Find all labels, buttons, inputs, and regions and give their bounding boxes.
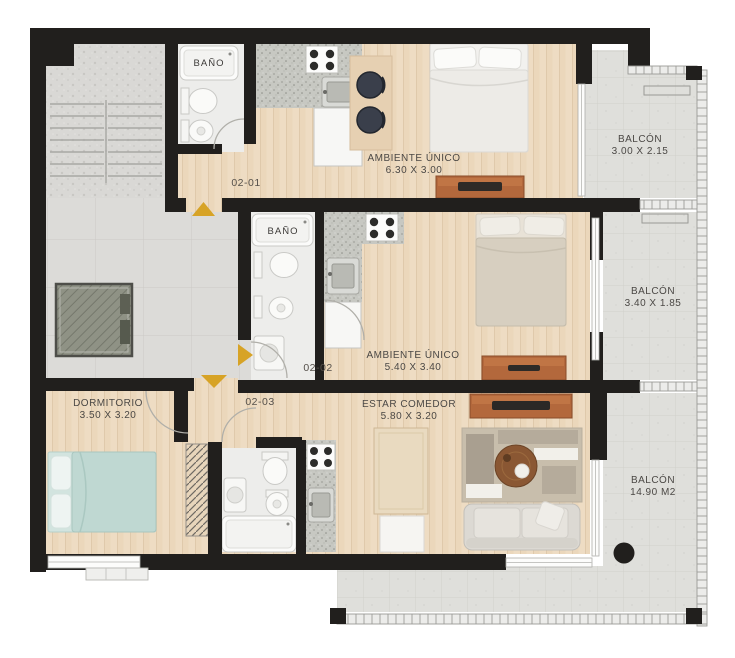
wall-bath1-kitchen — [244, 44, 256, 144]
pillow — [524, 216, 565, 236]
living-area — [462, 428, 582, 502]
wall-stair-step — [46, 44, 74, 66]
wall-vestibule — [174, 391, 188, 442]
unit-label-3: 02-03 — [245, 396, 274, 408]
wall-bath3-kitchen — [296, 440, 306, 554]
room-dims-balcon-3: 14.90 M2 — [630, 487, 676, 498]
exterior-mask — [650, 28, 735, 68]
bench — [380, 516, 424, 552]
tv — [492, 401, 550, 410]
room-dims-dormitorio: 3.50 X 3.20 — [80, 410, 137, 421]
room-dims-estar: 5.80 X 3.20 — [381, 411, 438, 422]
post — [330, 608, 346, 624]
wall-b-left — [46, 378, 194, 391]
post — [686, 66, 702, 80]
railing-right — [697, 70, 707, 626]
post — [686, 608, 702, 624]
wall-bath3-left — [208, 442, 222, 554]
railing-divider-2 — [640, 382, 697, 391]
room-dims-balcon-2: 3.40 X 1.85 — [625, 298, 682, 309]
wall-b-main — [238, 380, 603, 393]
wall-a-left — [165, 198, 186, 212]
railing-divider-1 — [640, 200, 697, 209]
plate — [515, 464, 529, 478]
railing-bottom — [337, 614, 707, 624]
wall-left — [30, 28, 46, 572]
wall-bath3-top — [256, 437, 302, 448]
coffee-table — [495, 445, 537, 487]
room-label-bano-2: BAÑO — [268, 226, 299, 237]
wall-hall-unit2 — [238, 212, 251, 340]
bed-3 — [48, 452, 156, 532]
room-label-estar: ESTAR COMEDOR — [362, 399, 456, 410]
wall-bath1-left — [165, 44, 178, 198]
unit-label-1: 02-01 — [231, 177, 260, 189]
wall-stub-balc1 — [576, 44, 592, 84]
wall-a-main — [222, 198, 583, 212]
wall-estar-right — [590, 393, 607, 460]
wall-estar-bottom — [346, 554, 506, 570]
room-label-ambiente-1: AMBIENTE ÚNICO — [367, 151, 460, 164]
window-ledge — [86, 568, 148, 580]
room-dims-ambiente-1: 6.30 X 3.00 — [386, 165, 443, 176]
kitchen-3 — [306, 440, 336, 552]
duvet — [476, 238, 566, 326]
toilet-tank — [254, 252, 262, 278]
room-dims-ambiente-2: 5.40 X 3.40 — [385, 362, 442, 373]
stove — [307, 444, 335, 470]
bar-stool — [357, 72, 383, 98]
dresser-1 — [436, 176, 524, 198]
bidet-base — [181, 120, 189, 142]
balcony3-floor-right — [603, 393, 702, 612]
sofa — [464, 501, 580, 550]
wardrobe — [186, 444, 208, 536]
room-dims-balcon-1: 3.00 X 2.15 — [612, 146, 669, 157]
tv — [458, 182, 502, 191]
floor-plan: BAÑO BAÑO 02-01 02-02 02-03 AMBIENTE ÚNI… — [0, 0, 735, 658]
pillow — [51, 456, 71, 490]
stove — [366, 214, 398, 241]
tv-console — [470, 394, 572, 418]
room-label-ambiente-2: AMBIENTE ÚNICO — [366, 348, 459, 361]
stove — [306, 46, 338, 73]
duvet — [72, 452, 156, 532]
toilet — [270, 253, 298, 278]
room-label-balcon-1: BALCÓN — [618, 132, 662, 145]
toilet — [189, 89, 217, 114]
wall-top — [30, 28, 650, 44]
pillow — [480, 216, 521, 236]
column — [614, 543, 635, 564]
pillow — [433, 47, 476, 70]
pillow — [51, 494, 71, 528]
bed-1 — [430, 44, 528, 152]
elevator-panel — [120, 320, 130, 344]
floor-plan-canvas: BAÑO BAÑO 02-01 02-02 02-03 AMBIENTE ÚNI… — [0, 0, 735, 658]
bar-stool — [357, 107, 383, 133]
toilet-tank — [181, 88, 189, 114]
wall-corner-tr — [628, 28, 650, 70]
unit-label-2: 02-02 — [303, 362, 332, 374]
room-label-balcon-2: BALCÓN — [631, 284, 675, 297]
bed-2 — [476, 214, 566, 326]
bidet-base — [254, 296, 262, 318]
wall-bath2-right — [315, 212, 324, 380]
room-label-balcon-3: BALCÓN — [631, 473, 675, 486]
kitchen-cabinet — [325, 302, 361, 348]
toilet — [263, 458, 287, 485]
balcony3-floor-bottom — [337, 566, 603, 612]
dresser-2 — [482, 356, 566, 380]
room-label-bano-1: BAÑO — [194, 58, 225, 69]
elevator — [56, 284, 132, 356]
wall-balc-divider-1 — [583, 198, 640, 212]
pillow — [479, 47, 522, 69]
elevator-panel — [120, 294, 130, 314]
bathroom-3 — [222, 448, 296, 552]
dining-table — [374, 428, 428, 552]
room-label-dormitorio: DORMITORIO — [73, 398, 143, 409]
bathroom-2 — [251, 212, 315, 380]
sofa-cushion — [474, 508, 520, 538]
breakfast-bar — [350, 56, 392, 150]
